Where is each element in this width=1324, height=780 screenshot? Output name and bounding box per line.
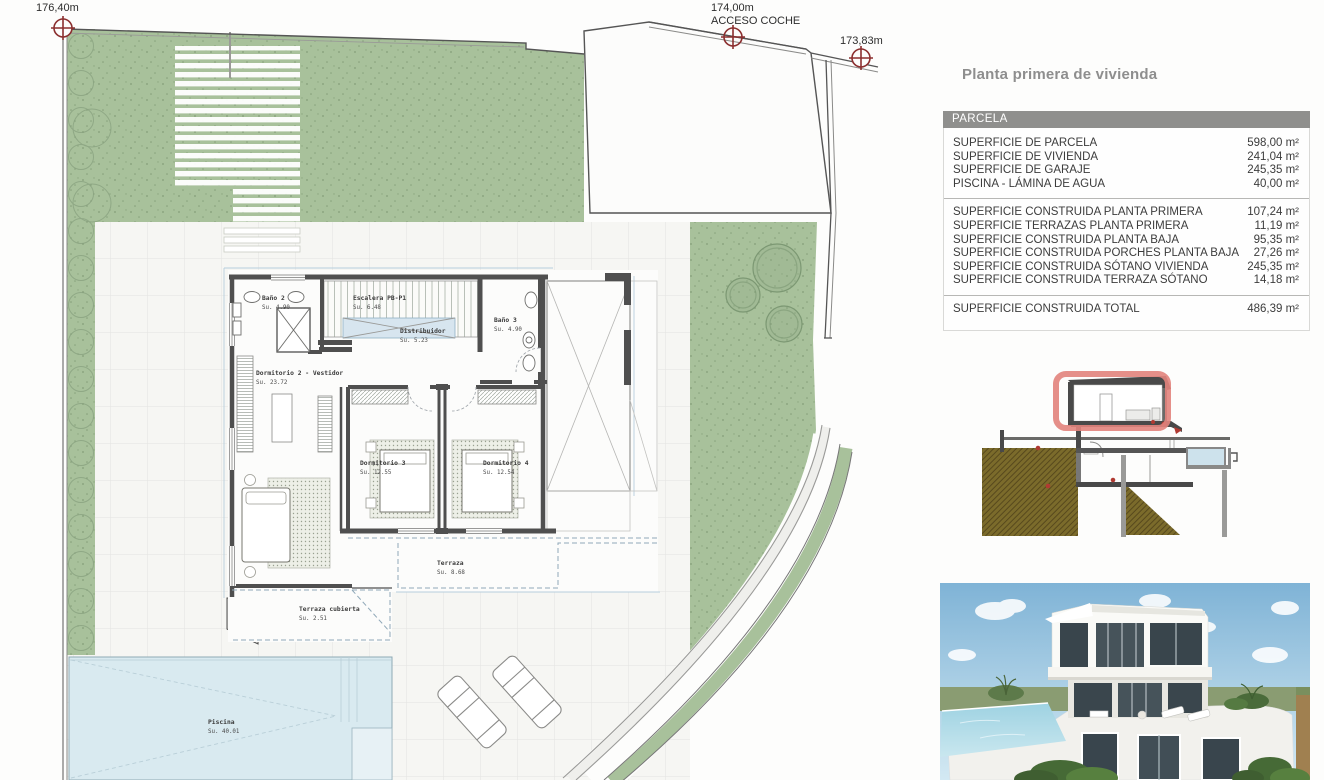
pool: Piscina Su. 40.01	[69, 657, 392, 780]
row-label: SUPERFICIE CONSTRUIDA TOTAL	[953, 303, 1140, 317]
row-value: 245,35 m²	[1247, 261, 1299, 275]
row-label: SUPERFICIE CONSTRUIDA TERRAZA SÓTANO	[953, 274, 1208, 288]
row-label: SUPERFICIE CONSTRUIDA SÓTANO VIVIENDA	[953, 261, 1208, 275]
row-label: SUPERFICIE DE PARCELA	[953, 137, 1097, 151]
room-area-bano2: Su. 4.90	[262, 305, 290, 311]
room-area-bano3: Su. 4.90	[494, 327, 522, 333]
table-row: SUPERFICIE CONSTRUIDA TERRAZA SÓTANO14,1…	[944, 274, 1309, 288]
plan-sheet: Piscina Su. 40.01	[0, 0, 1324, 780]
row-value: 598,00 m²	[1247, 137, 1299, 151]
elevation-note-2: ACCESO COCHE	[711, 15, 800, 27]
row-value: 40,00 m²	[1254, 178, 1299, 192]
row-label: SUPERFICIE TERRAZAS PLANTA PRIMERA	[953, 220, 1188, 234]
room-area-escalera: Su. 6.48	[353, 305, 381, 311]
table-row: SUPERFICIE CONSTRUIDA SÓTANO VIVIENDA245…	[944, 261, 1309, 275]
room-label-piscina: Piscina	[208, 718, 235, 726]
row-value: 14,18 m²	[1254, 274, 1299, 288]
section-drawing	[940, 358, 1324, 554]
row-label: SUPERFICIE CONSTRUIDA PLANTA PRIMERA	[953, 206, 1203, 220]
table-row: SUPERFICIE DE VIVIENDA241,04 m²	[944, 151, 1309, 165]
row-label: SUPERFICIE DE VIVIENDA	[953, 151, 1098, 165]
room-area-dorm4: Su. 12.54	[483, 470, 515, 476]
row-label: SUPERFICIE DE GARAJE	[953, 164, 1090, 178]
elevation-label-3: 173,83m	[840, 35, 883, 47]
row-value: 11,19 m²	[1254, 220, 1299, 234]
row-value: 241,04 m²	[1247, 151, 1299, 165]
table-header: PARCELA	[943, 111, 1310, 128]
ground-hatch	[982, 448, 1078, 536]
room-label-distribuidor: Distribuidor	[400, 327, 446, 335]
row-label: SUPERFICIE CONSTRUIDA PORCHES PLANTA BAJ…	[953, 247, 1239, 261]
row-label: SUPERFICIE CONSTRUIDA PLANTA BAJA	[953, 234, 1179, 248]
elevation-label-2: 174,00m	[711, 2, 754, 14]
room-label-escalera: Escalera PB-P1	[353, 295, 406, 302]
table-row: SUPERFICIE DE PARCELA598,00 m²	[944, 137, 1309, 151]
row-value: 245,35 m²	[1247, 164, 1299, 178]
page-title: Planta primera de vivienda	[962, 66, 1157, 83]
room-label-terraza: Terraza	[437, 560, 464, 567]
table-separator	[944, 295, 1309, 296]
villa-render	[940, 583, 1310, 780]
room-label-bano2: Baño 2	[262, 295, 285, 302]
table-row-total: SUPERFICIE CONSTRUIDA TOTAL486,39 m²	[944, 303, 1309, 317]
elevation-label-1: 176,40m	[36, 2, 79, 14]
room-label-terraza-cubierta: Terraza cubierta	[299, 605, 360, 613]
room-label-bano3: Baño 3	[494, 317, 517, 324]
table-row: SUPERFICIE CONSTRUIDA PLANTA BAJA95,35 m…	[944, 234, 1309, 248]
site-plan-drawing: Piscina Su. 40.01	[0, 0, 935, 780]
table-row: SUPERFICIE TERRAZAS PLANTA PRIMERA11,19 …	[944, 220, 1309, 234]
dirt-strip	[1296, 695, 1310, 780]
room-area-piscina: Su. 40.01	[208, 729, 240, 735]
room-label-dorm2: Dormitorio 2 - Vestidor	[256, 369, 343, 377]
table-row: SUPERFICIE CONSTRUIDA PLANTA PRIMERA107,…	[944, 206, 1309, 220]
floor-plan: Baño 2 Su. 4.90 Escalera PB-P1 Su. 6.48 …	[224, 268, 660, 642]
section-pool	[1186, 448, 1237, 469]
villa-building	[1045, 603, 1212, 718]
row-value: 486,39 m²	[1247, 303, 1299, 317]
table-body: SUPERFICIE DE PARCELA598,00 m² SUPERFICI…	[943, 128, 1310, 331]
room-area-dorm2: Su. 23.72	[256, 380, 287, 386]
table-row: SUPERFICIE CONSTRUIDA PORCHES PLANTA BAJ…	[944, 247, 1309, 261]
room-area-distribuidor: Su. 5.23	[400, 338, 428, 344]
room-label-dorm3: Dormitorio 3	[360, 459, 406, 467]
room-area-terraza: Su. 8.68	[437, 570, 465, 576]
room-label-dorm4: Dormitorio 4	[483, 459, 529, 467]
row-value: 27,26 m²	[1254, 247, 1299, 261]
parcela-table: PARCELA SUPERFICIE DE PARCELA598,00 m² S…	[943, 111, 1310, 331]
table-row: PISCINA - LÁMINA DE AGUA40,00 m²	[944, 178, 1309, 192]
room-area-terraza-cubierta: Su. 2.51	[299, 616, 327, 622]
room-area-dorm3: Su. 12.55	[360, 470, 392, 476]
row-value: 107,24 m²	[1247, 206, 1299, 220]
row-label: PISCINA - LÁMINA DE AGUA	[953, 178, 1105, 192]
table-separator	[944, 198, 1309, 199]
row-value: 95,35 m²	[1254, 234, 1299, 248]
table-row: SUPERFICIE DE GARAJE245,35 m²	[944, 164, 1309, 178]
